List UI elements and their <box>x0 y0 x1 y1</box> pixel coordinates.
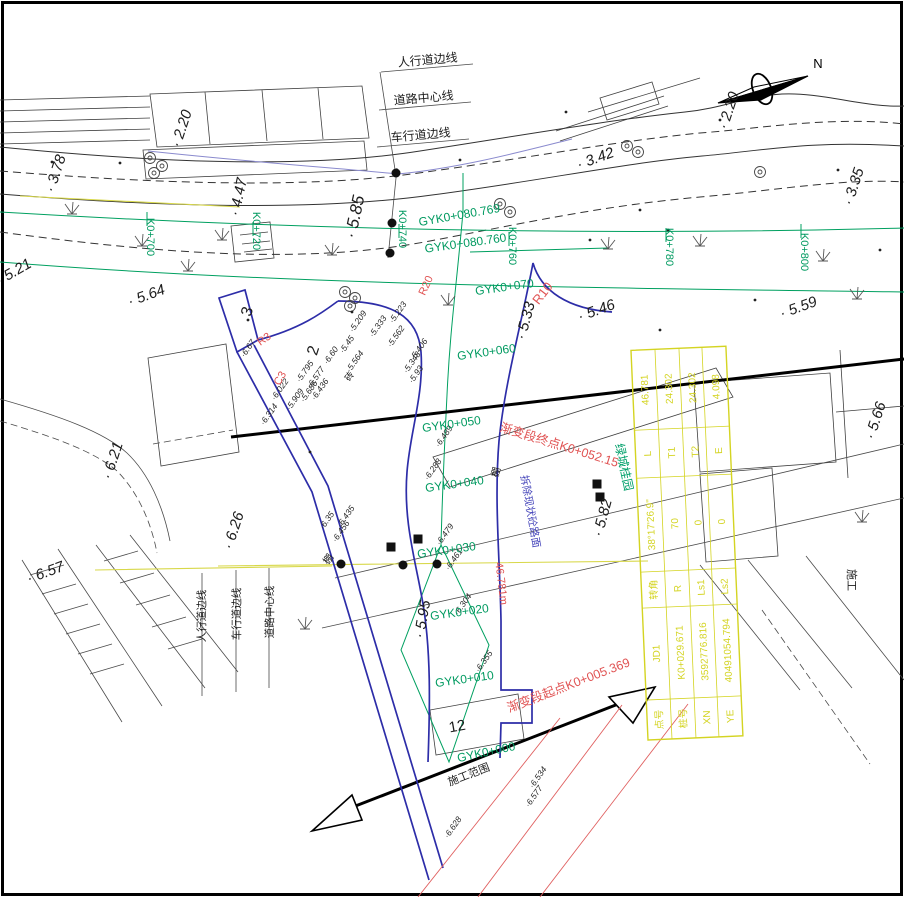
curve-table-cell: 0 <box>717 518 728 524</box>
curve-table-cell: 点号 <box>653 709 666 730</box>
survey-point-dot <box>337 560 346 569</box>
spot-point <box>589 239 592 242</box>
station-label-main: K0+740 <box>396 210 408 248</box>
curve-table-cell: YE <box>725 709 737 723</box>
curve-table-cell: Ls1 <box>696 579 708 596</box>
station-label-main: K0+760 <box>506 227 518 265</box>
station-label-main: K0+720 <box>250 212 262 250</box>
station-label-main: K0+700 <box>144 218 156 256</box>
curve-table-cell: 24.302 <box>664 373 676 404</box>
station-label-main: K0+800 <box>798 233 810 271</box>
survey-point-dot <box>399 561 408 570</box>
curve-table-cell: T1 <box>667 446 679 459</box>
spot-point <box>659 329 662 332</box>
spot-point <box>309 451 312 454</box>
spot-point <box>459 159 462 162</box>
curve-table-cell: 70 <box>670 517 681 529</box>
marker-square <box>593 480 602 489</box>
curve-table-cell: Ls2 <box>720 578 732 595</box>
curve-table-cell: 24.302 <box>687 372 699 403</box>
curve-table-cell: E <box>714 447 725 454</box>
curve-table-cell: R <box>673 585 684 593</box>
survey-point-dot <box>388 219 397 228</box>
marker-square <box>387 543 396 552</box>
survey-point-dot <box>386 249 395 258</box>
curve-table-cell: 桩号 <box>676 708 690 729</box>
curve-table-cell: 4.098 <box>711 373 723 399</box>
spot-point <box>639 209 642 212</box>
road-line-label: 车行道边线 <box>230 587 243 640</box>
spot-point <box>837 169 840 172</box>
black-annotation: 12 <box>448 717 467 737</box>
cad-plan-drawing: N 点号JD1转角38°17'26.9"L46.781桩号K0+029.671R… <box>0 0 904 897</box>
road-line-label: 道路中心线 <box>263 585 276 638</box>
curve-table-cell: 46.781 <box>640 374 652 405</box>
curve-table-cell: L <box>643 450 654 456</box>
curve-table-cell: T2 <box>690 445 702 458</box>
survey-point-dot <box>392 169 401 178</box>
curve-table-cell: JD1 <box>651 644 663 663</box>
plan-canvas: N 点号JD1转角38°17'26.9"L46.781桩号K0+029.671R… <box>0 0 904 897</box>
spot-point <box>754 299 757 302</box>
spot-point <box>879 249 882 252</box>
curve-table-cell: 38°17'26.9" <box>645 498 658 550</box>
spot-point <box>351 311 354 314</box>
road-line-label: 人行道边线 <box>195 589 208 642</box>
spot-point <box>247 319 250 322</box>
spot-point <box>119 162 122 165</box>
curve-table-cell: 转角 <box>647 579 661 600</box>
curve-table-cell: 0 <box>693 519 704 525</box>
marker-square <box>414 535 423 544</box>
spot-point <box>565 111 568 114</box>
curve-table-cell: XN <box>702 710 714 724</box>
station-label-main: K0+780 <box>663 228 675 266</box>
drawing-frame <box>3 3 902 895</box>
north-label: N <box>813 56 822 71</box>
survey-point-dot <box>433 560 442 569</box>
black-annotation: 施工 <box>845 569 858 591</box>
